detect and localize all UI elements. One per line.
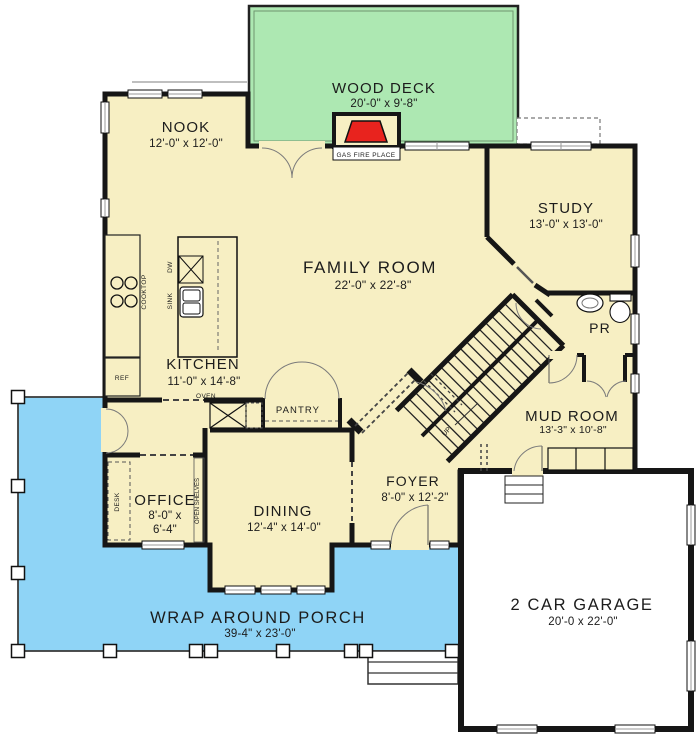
kitchen-dims: 11'-0" x 14'-8": [168, 376, 241, 388]
sidelight-window: [371, 541, 390, 549]
deck-door-opening: [259, 141, 325, 151]
window: [142, 541, 184, 549]
window: [101, 102, 109, 133]
porch-label: WRAP AROUND PORCH: [150, 609, 366, 627]
window: [531, 142, 591, 150]
porch-post: [190, 645, 203, 658]
pr-label: PR: [589, 320, 611, 336]
floor-plan: WOOD DECK 20'-0" x 9'-8" NOOK 12'-0" x 1…: [0, 0, 700, 739]
porch-post: [360, 645, 373, 658]
window: [631, 235, 639, 267]
porch-post: [12, 391, 25, 404]
porch-post: [345, 645, 358, 658]
garage-door: [615, 725, 655, 733]
foyer-dims: 8'-0" x 12'-2": [381, 492, 448, 504]
porch-post: [277, 645, 290, 658]
cooktop-label: COOKTOP: [141, 274, 148, 309]
dining-dims: 12'-4" x 14'-0": [247, 522, 321, 534]
porch-post: [446, 645, 459, 658]
window: [101, 199, 109, 217]
dining-label: DINING: [253, 503, 312, 520]
floor-plan-drawing: WOOD DECK 20'-0" x 9'-8" NOOK 12'-0" x 1…: [0, 0, 700, 739]
study-dims: 13'-0" x 13'-0": [529, 219, 603, 231]
nook-dims: 12'-0" x 12'-0": [149, 138, 223, 150]
garage-dims: 20'-0 x 22'-0": [548, 616, 617, 628]
open-shelves-label: OPEN SHELVES: [195, 478, 201, 524]
study-label: STUDY: [538, 200, 594, 217]
desk-label: DESK: [114, 492, 121, 512]
office-label: OFFICE: [134, 492, 196, 509]
ref-label: REF: [115, 375, 129, 382]
kitchen-label: KITCHEN: [166, 356, 240, 373]
window: [631, 314, 639, 344]
office-dims-1: 8'-0" x: [148, 510, 181, 522]
pr-door-opening: [549, 351, 577, 359]
oven-icon: [210, 403, 246, 428]
window: [405, 142, 469, 150]
sink-label: SINK: [167, 292, 174, 309]
porch-post: [12, 645, 25, 658]
porch-dims: 39-4" x 23'-0": [224, 628, 295, 640]
pr-sink-icon: [577, 294, 603, 312]
office-dims-2: 6'-4": [153, 524, 177, 536]
family-room-dims: 22'-0" x 22'-8": [335, 278, 412, 292]
porch-steps: [368, 651, 458, 684]
porch-post: [205, 645, 218, 658]
nook-label: NOOK: [162, 119, 211, 136]
window: [687, 641, 695, 691]
window: [168, 90, 202, 98]
porch-post: [104, 645, 117, 658]
window: [297, 586, 325, 594]
window: [261, 586, 291, 594]
dw-label: DW: [167, 261, 174, 273]
fireplace-label: GAS FIRE PLACE: [336, 152, 395, 159]
window: [687, 505, 695, 545]
sink-icon: [180, 287, 203, 317]
porch-post: [12, 480, 25, 493]
oven-label: OVEN: [196, 393, 216, 400]
porch-door-opening: [101, 408, 110, 452]
porch-post: [12, 567, 25, 580]
family-room-label: FAMILY ROOM: [303, 258, 437, 277]
fireplace-icon: [345, 121, 387, 142]
deck-label: WOOD DECK: [332, 80, 436, 97]
foyer-label: FOYER: [386, 473, 440, 489]
garage-door: [497, 725, 537, 733]
mud-room-dims: 13'-3" x 10'-8": [539, 424, 607, 436]
window: [225, 586, 255, 594]
window: [631, 374, 639, 393]
garage-steps: [505, 476, 543, 503]
bay-roof-dashed: [517, 118, 600, 144]
mud-room-label: MUD ROOM: [525, 408, 619, 425]
sidelight-window: [430, 541, 449, 549]
garage-label: 2 CAR GARAGE: [511, 596, 654, 614]
window: [128, 90, 162, 98]
mudroom-cubbies: [548, 448, 633, 470]
front-door-opening: [391, 540, 429, 550]
deck-dims: 20'-0" x 9'-8": [350, 98, 417, 110]
pantry-label: PANTRY: [276, 405, 320, 416]
garage-door-opening: [512, 467, 543, 476]
toilet-icon: [610, 294, 631, 323]
